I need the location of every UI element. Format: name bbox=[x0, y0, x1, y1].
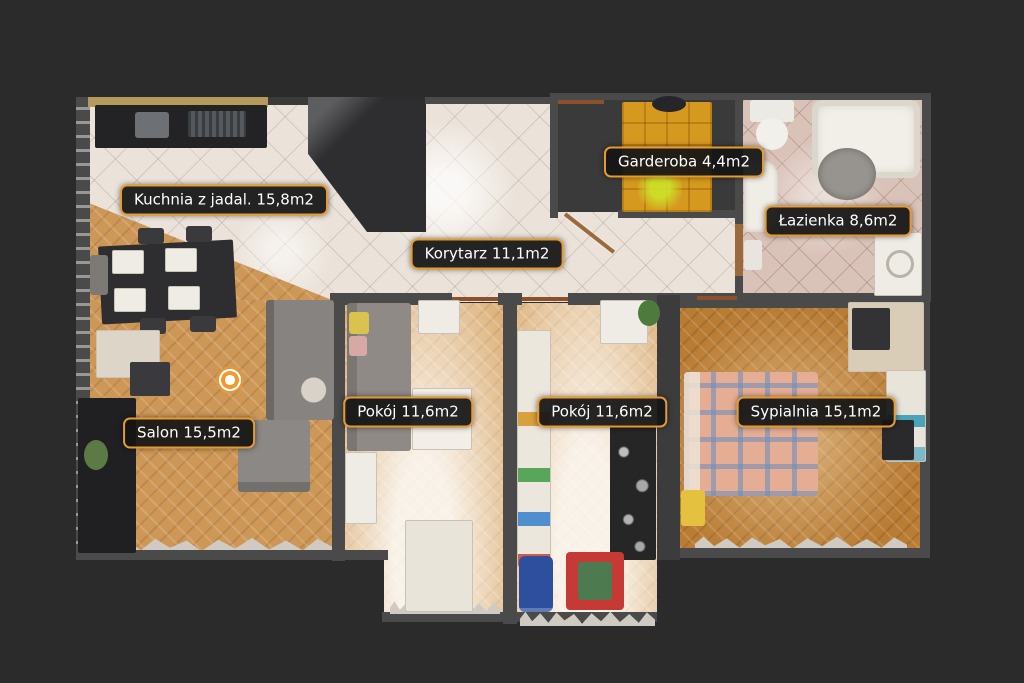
placemat bbox=[165, 248, 197, 272]
desk-chair-sypialnia bbox=[852, 308, 890, 350]
cabinet-pokoj1 bbox=[405, 520, 473, 612]
garderoba-dark-object bbox=[652, 96, 686, 112]
room-label-korytarz[interactable]: Korytarz 11,1m2 bbox=[411, 239, 564, 270]
wall-corridor-top bbox=[425, 97, 556, 104]
placemat bbox=[168, 286, 200, 310]
wall-pokoj2-sypialnia bbox=[657, 295, 680, 560]
washing-machine-drum bbox=[886, 250, 914, 278]
dining-bench bbox=[90, 255, 108, 295]
patterned-rug bbox=[610, 425, 656, 560]
wall-pokoj1-bottom-step bbox=[332, 550, 388, 560]
wall-garderoba-top bbox=[550, 93, 743, 100]
wall-bathroom-top bbox=[743, 93, 930, 100]
red-chair-seat bbox=[578, 562, 612, 600]
bath-rug bbox=[818, 148, 876, 200]
wall-pokoj1-pokoj2 bbox=[503, 295, 517, 624]
camera-point-marker[interactable] bbox=[215, 365, 245, 395]
desk-chair bbox=[130, 362, 170, 396]
room-label-kuchnia[interactable]: Kuchnia z jadal. 15,8m2 bbox=[120, 185, 328, 216]
pink-pillow bbox=[349, 336, 367, 356]
toilet-bowl bbox=[756, 118, 788, 150]
room-label-pokoj2[interactable]: Pokój 11,6m2 bbox=[537, 397, 667, 428]
placemat bbox=[112, 250, 144, 274]
bed bbox=[684, 372, 818, 496]
room-label-sypialnia[interactable]: Sypialnia 15,1m2 bbox=[737, 397, 896, 428]
sofa bbox=[266, 300, 334, 420]
side-cabinet-pokoj1 bbox=[345, 452, 377, 524]
scan-void bbox=[332, 558, 384, 624]
bathroom-door-opening[interactable] bbox=[735, 224, 743, 276]
plant-icon bbox=[638, 300, 660, 326]
blue-bin bbox=[519, 556, 553, 612]
dining-chair bbox=[186, 226, 212, 242]
wall-sypialnia-bottom bbox=[680, 548, 930, 558]
yellow-blanket bbox=[681, 490, 705, 526]
wall-kitchen-top bbox=[268, 97, 313, 105]
wall-garderoba-left bbox=[550, 94, 558, 218]
plant-icon bbox=[84, 440, 108, 470]
shelf-pokoj1 bbox=[418, 300, 460, 334]
floorplan-canvas: Kuchnia z jadal. 15,8m2 Korytarz 11,1m2 … bbox=[0, 0, 1024, 683]
toy-shelf-pokoj2 bbox=[517, 330, 551, 567]
towel-roll bbox=[744, 240, 762, 270]
room-label-pokoj1[interactable]: Pokój 11,6m2 bbox=[343, 397, 473, 428]
sypialnia-door-threshold[interactable] bbox=[697, 296, 737, 300]
pokoj2-door-threshold[interactable] bbox=[522, 297, 568, 301]
room-label-garderoba[interactable]: Garderoba 4,4m2 bbox=[604, 147, 764, 178]
dining-chair bbox=[190, 316, 216, 332]
placemat bbox=[114, 288, 146, 312]
yellow-pillow bbox=[349, 312, 369, 334]
room-label-lazienka[interactable]: Łazienka 8,6m2 bbox=[765, 206, 912, 237]
room-label-salon[interactable]: Salon 15,5m2 bbox=[123, 418, 255, 449]
bed-pillows bbox=[684, 372, 700, 496]
wall-bathroom-right bbox=[922, 93, 931, 302]
kitchen-sink-icon bbox=[135, 112, 169, 138]
dining-chair bbox=[138, 228, 164, 244]
kitchen-stove-icon bbox=[188, 111, 246, 137]
